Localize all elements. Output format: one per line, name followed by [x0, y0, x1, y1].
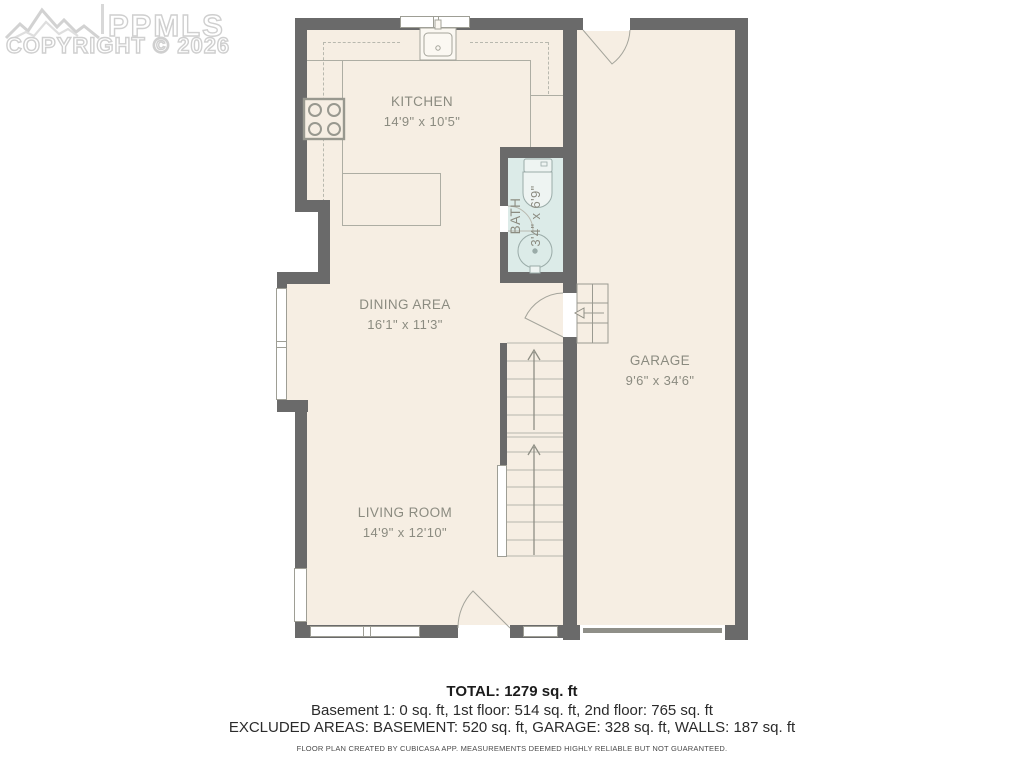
cabinet-dashed-line — [323, 42, 400, 43]
cabinet-dashed-line — [470, 42, 548, 43]
garage-bottom-corner-left — [563, 625, 580, 640]
window-mullion — [277, 347, 286, 348]
counter-edge — [342, 60, 343, 225]
summary-disclaimer: FLOOR PLAN CREATED BY CUBICASA APP. MEAS… — [0, 744, 1024, 753]
counter-edge — [342, 173, 440, 174]
room-label-bath: BATH 3'4" x 6'9" — [506, 151, 546, 281]
room-dims: 16'1" x 11'3" — [325, 315, 485, 335]
room-name: LIVING ROOM — [325, 503, 485, 523]
window-mullion — [363, 627, 364, 636]
garage-bottom-corner-right — [725, 625, 748, 640]
floor-plan-page: PPMLS COPYRIGHT © 2026 — [0, 0, 1024, 767]
counter-edge — [440, 173, 441, 226]
watermark: PPMLS COPYRIGHT © 2026 — [0, 0, 260, 70]
counter-edge — [342, 225, 441, 226]
room-label-garage: GARAGE 9'6" x 34'6" — [580, 351, 740, 391]
room-label-dining: DINING AREA 16'1" x 11'3" — [325, 295, 485, 335]
garage-door — [583, 628, 722, 633]
window-mullion — [433, 17, 434, 27]
summary-excluded: EXCLUDED AREAS: BASEMENT: 520 sq. ft, GA… — [0, 719, 1024, 736]
garage-floor — [577, 30, 735, 626]
window-mullion — [370, 627, 371, 636]
counter-edge — [307, 60, 530, 61]
garage-entry-door-opening — [583, 17, 630, 31]
watermark-copyright: COPYRIGHT © 2026 — [6, 33, 230, 59]
window-mullion — [277, 341, 286, 342]
window-mullion — [438, 17, 439, 27]
entry-front-window — [523, 626, 558, 637]
wall-left-upper — [295, 18, 307, 212]
room-name: KITCHEN — [342, 92, 502, 112]
summary-total: TOTAL: 1279 sq. ft — [0, 683, 1024, 700]
counter-edge — [530, 95, 563, 96]
stair-railing — [497, 465, 507, 557]
hall-garage-door-opening — [563, 293, 577, 337]
room-name: BATH — [506, 151, 526, 281]
living-side-window — [294, 568, 307, 622]
room-dims: 14'9" x 10'5" — [342, 112, 502, 132]
dining-window — [276, 288, 287, 400]
room-dims: 3'4" x 6'9" — [526, 151, 546, 281]
room-name: GARAGE — [580, 351, 740, 371]
living-front-window — [310, 626, 420, 637]
counter-edge — [530, 60, 531, 150]
wall-garage-right — [735, 18, 748, 640]
room-label-kitchen: KITCHEN 14'9" x 10'5" — [342, 92, 502, 132]
wall-stair-side — [500, 343, 507, 465]
cabinet-dashed-line — [323, 42, 324, 202]
room-dims: 14'9" x 12'10" — [325, 523, 485, 543]
summary-floors: Basement 1: 0 sq. ft, 1st floor: 514 sq.… — [0, 702, 1024, 719]
room-dims: 9'6" x 34'6" — [580, 371, 740, 391]
room-name: DINING AREA — [325, 295, 485, 315]
cabinet-dashed-line — [548, 42, 549, 94]
room-label-living: LIVING ROOM 14'9" x 12'10" — [325, 503, 485, 543]
kitchen-window — [400, 16, 470, 28]
front-door-opening — [458, 625, 510, 638]
wall-top — [295, 18, 748, 30]
